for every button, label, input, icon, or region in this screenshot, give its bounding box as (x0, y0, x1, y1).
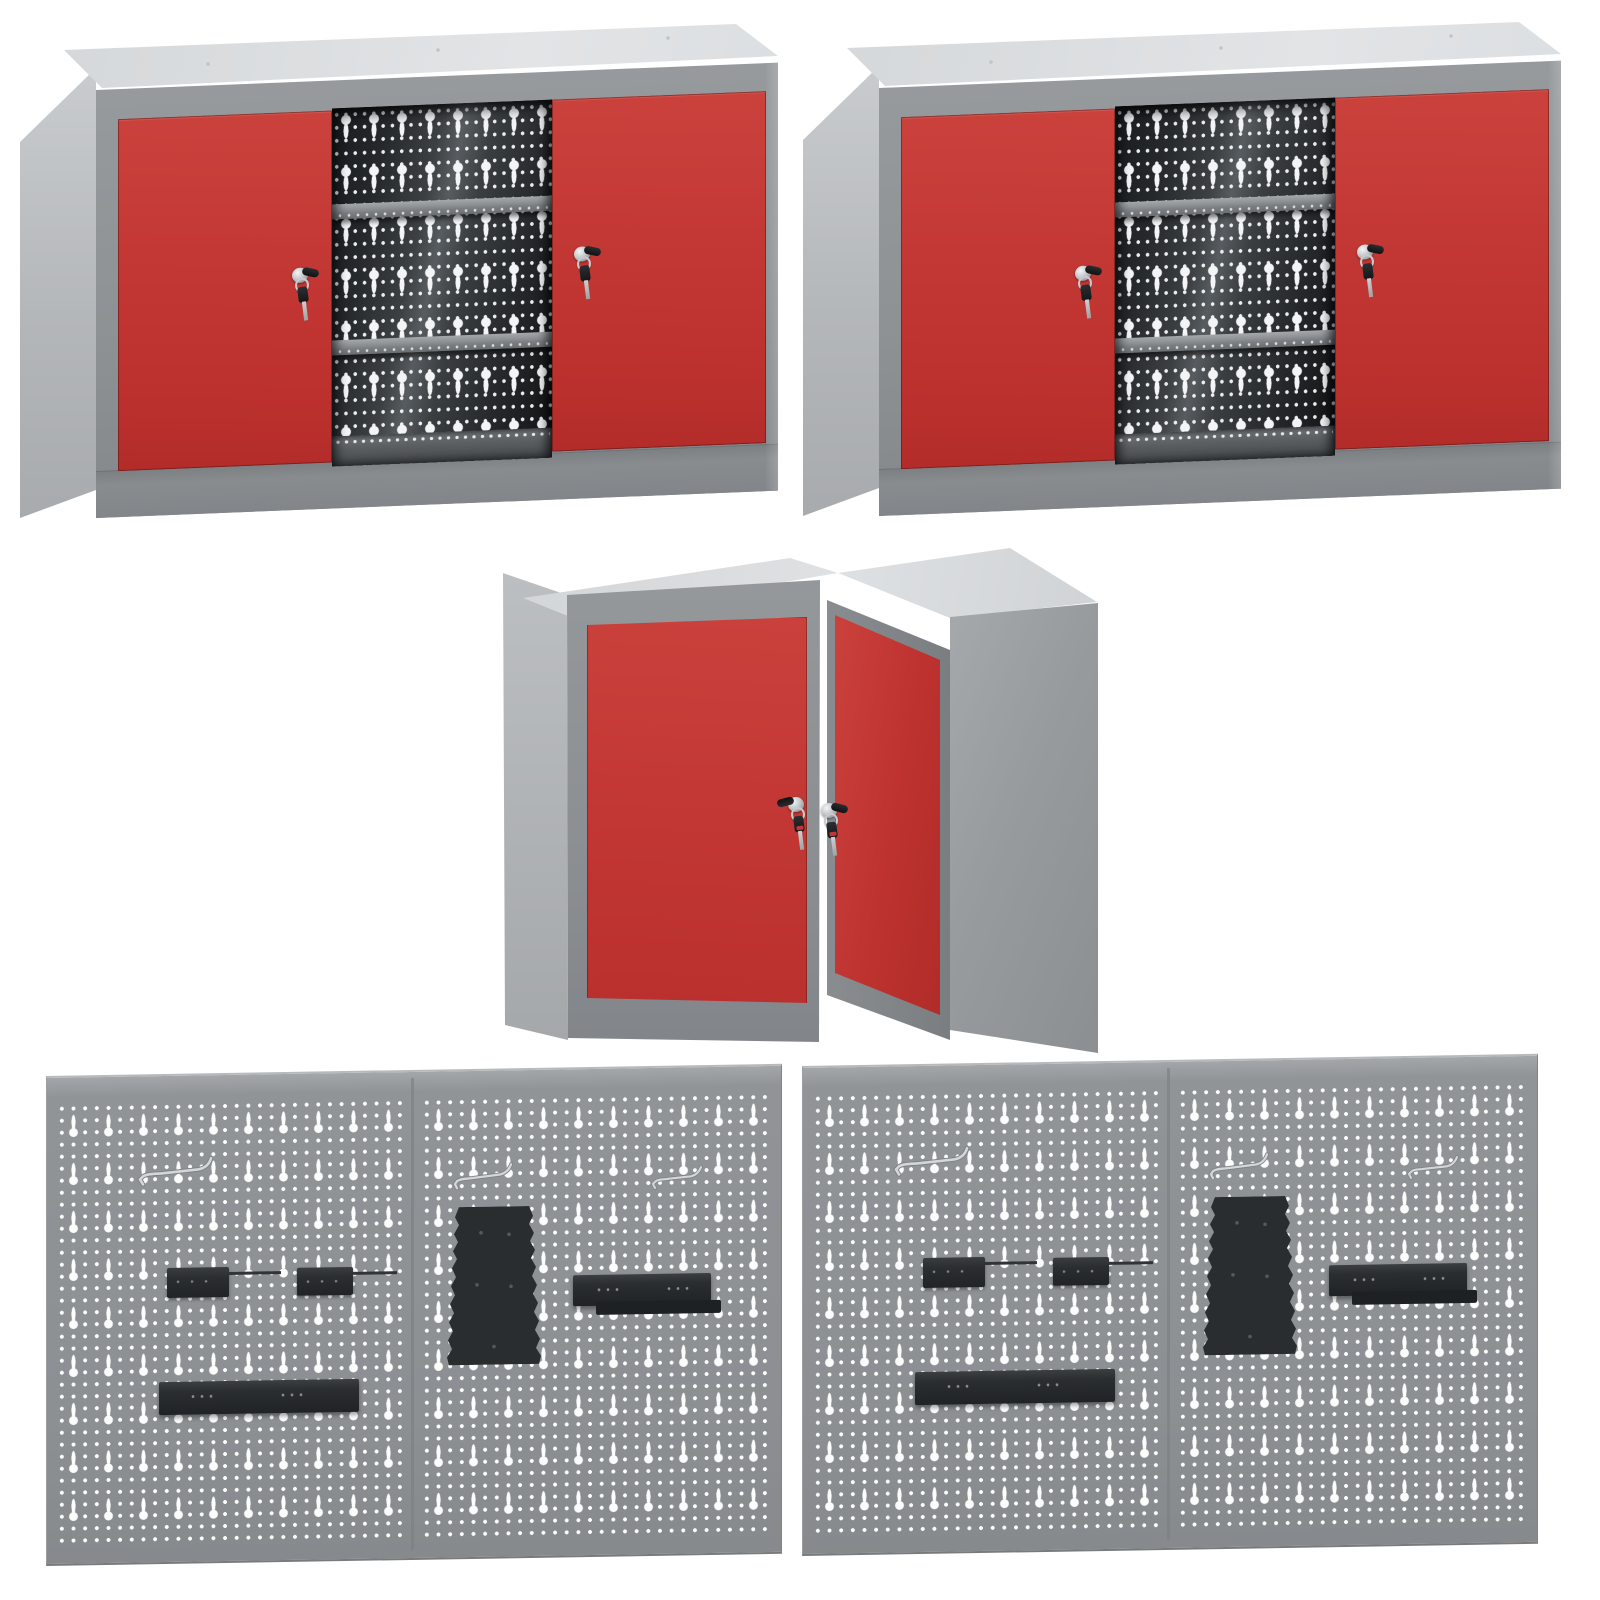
door-lock-with-key (574, 246, 604, 307)
key-icon (297, 286, 309, 303)
corner-right-side-panel (950, 603, 1098, 1053)
pegboard-panel-left (46, 1064, 782, 1566)
rail-holes (595, 1287, 623, 1291)
tool-hook-icon (137, 1153, 215, 1190)
key-icon (826, 821, 838, 838)
bracket-holes (305, 1279, 345, 1284)
door-lock-with-key (1075, 265, 1105, 326)
corner-wall-cabinet (495, 545, 1105, 1057)
small-holder-bracket (923, 1257, 985, 1288)
bracket-holes (1061, 1269, 1101, 1274)
rail-holes (1035, 1383, 1063, 1387)
door-lock-with-key (292, 267, 322, 328)
cabinet-front (96, 63, 778, 518)
tool-hook-icon (651, 1163, 705, 1192)
tool-hook-icon (1209, 1150, 1271, 1183)
corner-left-side-panel (503, 573, 568, 1040)
tapered-tool-holder (1199, 1196, 1301, 1356)
holder-rail (1329, 1263, 1467, 1296)
cabinet-side-panel (20, 68, 96, 518)
panel-seam (1167, 1068, 1170, 1540)
cabinet-front (879, 61, 1561, 516)
key-icon (579, 265, 591, 282)
tapered-tool-holder (443, 1206, 545, 1366)
cabinet-interior-pegboard (1115, 98, 1335, 465)
small-holder-bracket (297, 1267, 353, 1296)
corner-door-left (587, 617, 807, 1007)
small-holder-bracket (167, 1267, 229, 1298)
tool-hook-icon (1407, 1153, 1461, 1182)
rail-holes (945, 1384, 973, 1388)
panel-seam (411, 1078, 414, 1550)
cabinet-side-panel (803, 66, 879, 516)
rail-holes (189, 1394, 217, 1398)
interior-shadow (1115, 98, 1335, 465)
key-icon (1362, 263, 1374, 280)
pegboard-panel-right (802, 1054, 1538, 1556)
cabinet-interior-pegboard (332, 100, 552, 467)
rail-holes (279, 1393, 307, 1397)
door-lock-with-key (821, 803, 851, 863)
pegboard-field (56, 1097, 407, 1544)
wall-cabinet-right (803, 20, 1561, 516)
holder-rail (159, 1379, 359, 1415)
key-icon (1080, 284, 1092, 301)
rail-holes (665, 1286, 693, 1290)
rail-holes (1421, 1276, 1449, 1280)
key-icon (793, 815, 805, 832)
pegboard-field (812, 1087, 1163, 1534)
holder-rail (915, 1369, 1115, 1405)
product-collage (0, 0, 1600, 1600)
tool-hook-icon (453, 1160, 515, 1193)
interior-shadow (332, 100, 552, 467)
door-lock-with-key (1357, 244, 1387, 305)
holder-rail (573, 1273, 711, 1306)
tool-hook-icon (893, 1143, 971, 1180)
small-holder-bracket (1053, 1257, 1109, 1286)
wall-cabinet-left (20, 22, 778, 518)
door-lock-with-key (788, 797, 818, 857)
bracket-holes (175, 1279, 215, 1284)
bracket-holes (931, 1269, 971, 1274)
rail-holes (1351, 1277, 1379, 1281)
